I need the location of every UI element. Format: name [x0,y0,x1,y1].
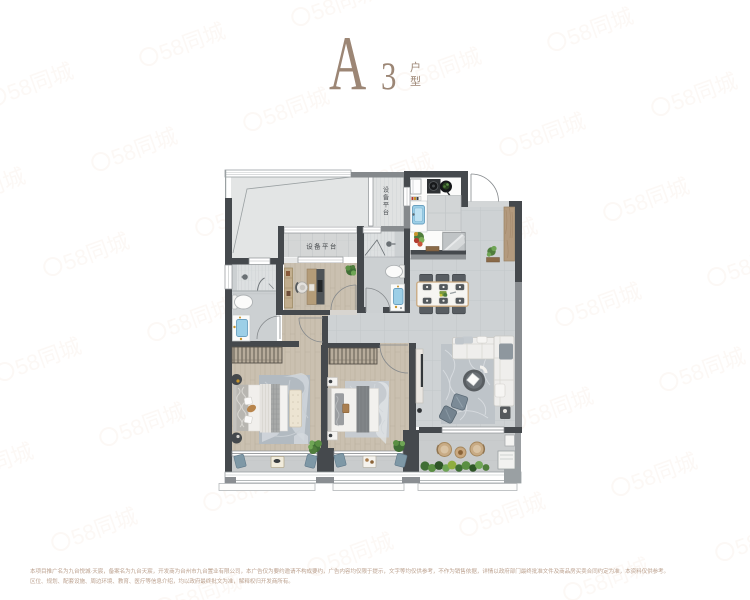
svg-text:设: 设 [383,186,389,194]
svg-text:设备平台: 设备平台 [306,242,338,251]
svg-text:平: 平 [383,202,389,209]
svg-text:台: 台 [383,209,389,217]
svg-text:备: 备 [383,194,390,202]
